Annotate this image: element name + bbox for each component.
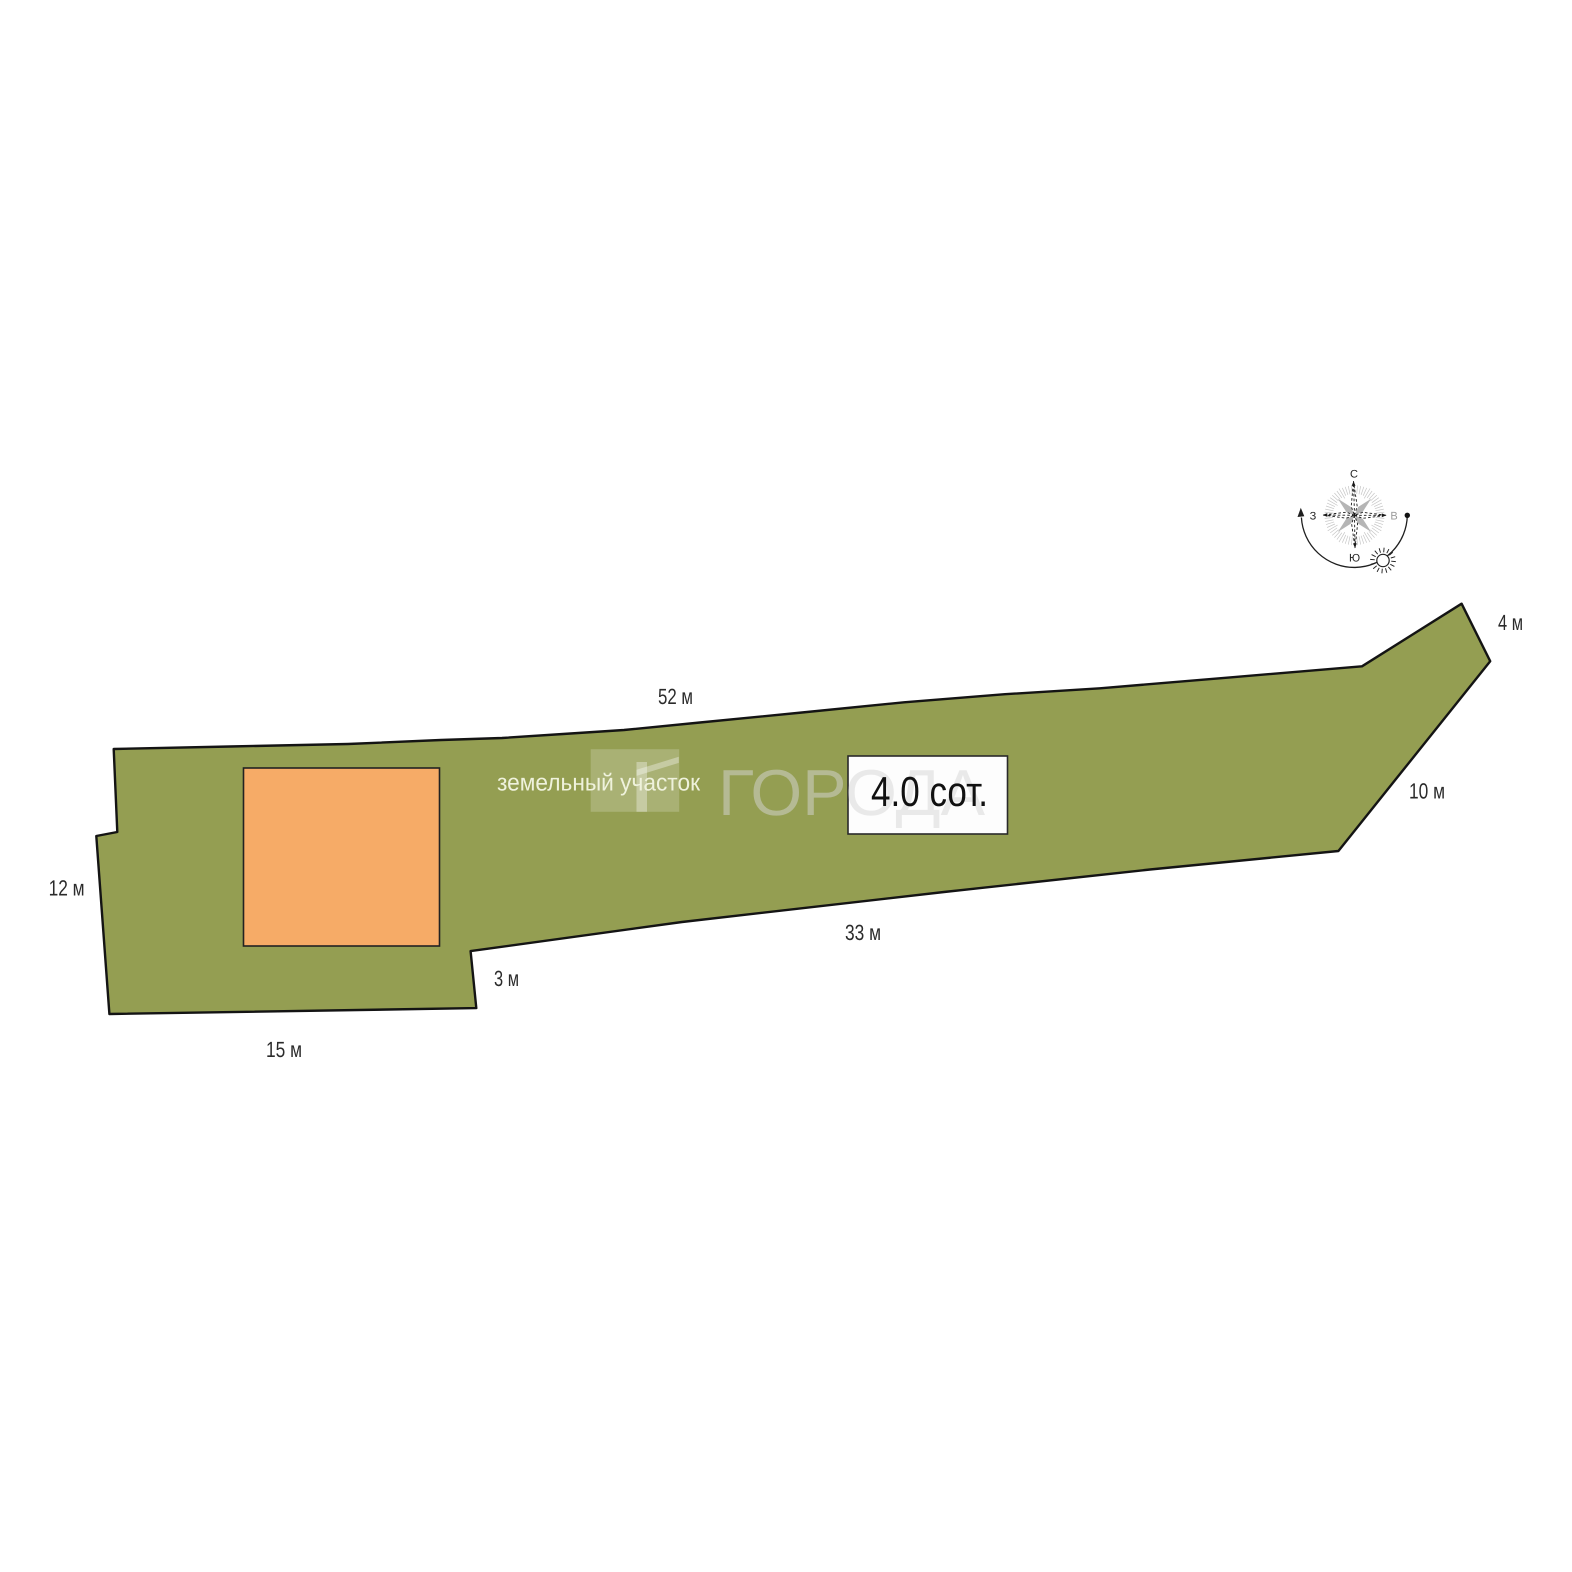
svg-text:3 м: 3 м <box>494 966 519 991</box>
svg-text:4 м: 4 м <box>1498 610 1523 635</box>
svg-text:15 м: 15 м <box>266 1037 302 1062</box>
svg-text:10 м: 10 м <box>1409 779 1445 804</box>
svg-text:земельный участок: земельный участок <box>497 770 700 797</box>
svg-text:33 м: 33 м <box>845 920 881 945</box>
svg-text:С: С <box>1350 469 1358 481</box>
svg-text:52 м: 52 м <box>658 684 693 709</box>
svg-text:Ю: Ю <box>1349 553 1360 565</box>
svg-text:З: З <box>1310 510 1317 522</box>
svg-text:12 м: 12 м <box>49 876 85 901</box>
svg-text:В: В <box>1390 511 1397 523</box>
svg-text:4.0 сот.: 4.0 сот. <box>871 768 988 815</box>
